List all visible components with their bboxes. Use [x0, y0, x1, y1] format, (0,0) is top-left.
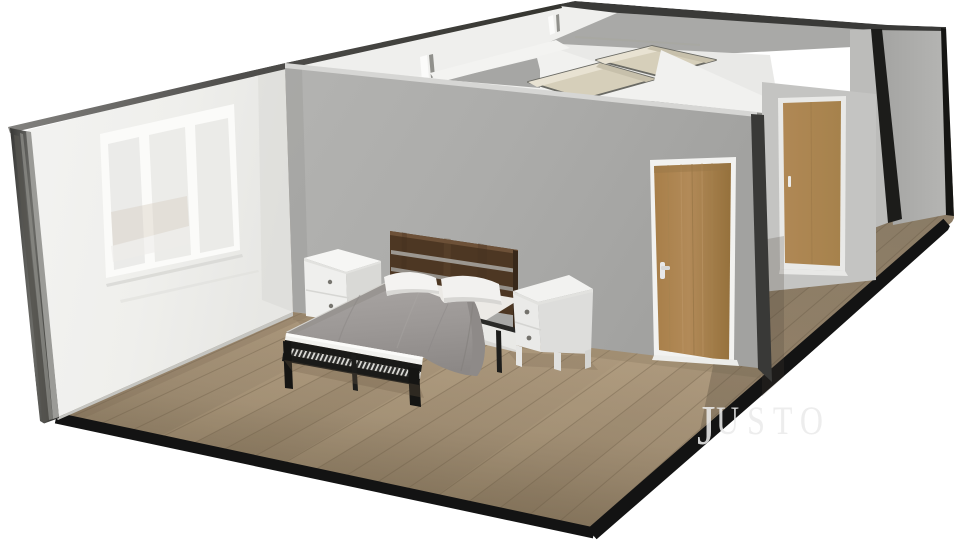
svg-text:J: J — [697, 396, 716, 457]
svg-text:USTO: USTO — [716, 399, 831, 443]
